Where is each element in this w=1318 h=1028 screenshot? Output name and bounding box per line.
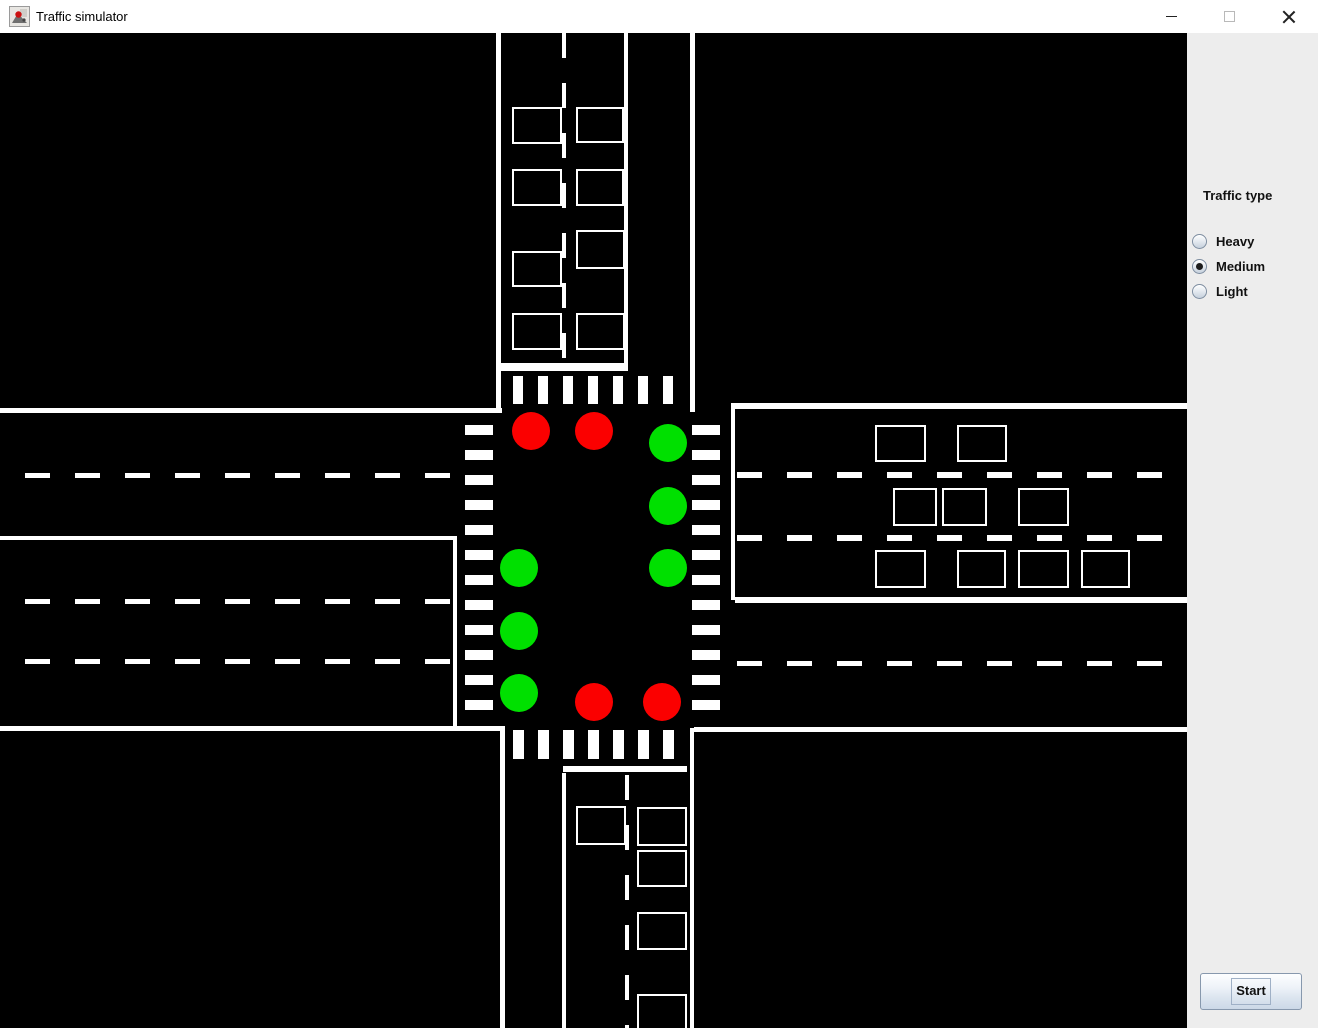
crosswalk-left-stripe xyxy=(465,550,493,560)
right-road-bottom-edge xyxy=(694,727,1187,732)
start-button-label: Start xyxy=(1231,978,1271,1004)
traffic-light-green xyxy=(649,487,687,525)
bottom-road-right-edge xyxy=(690,728,694,1028)
traffic-light-green xyxy=(500,549,538,587)
car xyxy=(576,806,626,845)
crosswalk-bottom-stripe xyxy=(538,730,549,759)
bottom-road-left-edge xyxy=(500,726,505,1028)
crosswalk-bottom-stripe xyxy=(663,730,674,759)
crosswalk-top-stripe xyxy=(513,376,523,404)
minimize-icon xyxy=(1166,16,1177,17)
crosswalk-left-stripe xyxy=(465,600,493,610)
crosswalk-right-stripe xyxy=(692,425,720,435)
crosswalk-top-stripe xyxy=(563,376,573,404)
radio-option-heavy[interactable]: Heavy xyxy=(1190,229,1315,254)
minimize-button[interactable] xyxy=(1142,0,1200,33)
close-icon xyxy=(1282,10,1296,24)
crosswalk-right-stripe xyxy=(692,700,720,710)
crosswalk-top-stripe xyxy=(638,376,648,404)
crosswalk-bottom-stripe xyxy=(563,730,574,759)
simulation-canvas xyxy=(0,33,1187,1028)
car xyxy=(576,169,624,206)
crosswalk-left-stripe xyxy=(465,625,493,635)
maximize-button[interactable] xyxy=(1200,0,1259,33)
radio-label: Heavy xyxy=(1216,234,1254,249)
car xyxy=(512,169,562,206)
car xyxy=(512,251,562,287)
window-title: Traffic simulator xyxy=(36,9,128,24)
crosswalk-left-stripe xyxy=(465,425,493,435)
car xyxy=(512,313,562,350)
app-icon xyxy=(9,6,30,27)
title-bar: Traffic simulator xyxy=(0,0,1318,33)
traffic-light-green xyxy=(649,424,687,462)
car xyxy=(576,230,625,269)
car xyxy=(942,488,987,526)
car xyxy=(512,107,562,144)
right-road-lane2-dashes xyxy=(737,535,1187,541)
car xyxy=(957,425,1007,462)
maximize-icon xyxy=(1224,11,1235,22)
radio-option-medium[interactable]: Medium xyxy=(1190,254,1315,279)
traffic-light-red xyxy=(512,412,550,450)
car xyxy=(957,550,1006,588)
crosswalk-right-stripe xyxy=(692,650,720,660)
crosswalk-right-stripe xyxy=(692,525,720,535)
radio-unselected-icon[interactable] xyxy=(1192,234,1207,249)
crosswalk-right-stripe xyxy=(692,550,720,560)
bottom-stop-line xyxy=(563,766,687,772)
left-road-median-line xyxy=(0,536,457,540)
crosswalk-left-stripe xyxy=(465,500,493,510)
crosswalk-left-stripe xyxy=(465,675,493,685)
top-road-left-edge xyxy=(496,33,501,413)
car xyxy=(1018,550,1069,588)
start-button[interactable]: Start xyxy=(1200,973,1302,1010)
car xyxy=(1018,488,1069,526)
crosswalk-bottom-stripe xyxy=(613,730,624,759)
traffic-light-green xyxy=(500,674,538,712)
crosswalk-right-stripe xyxy=(692,450,720,460)
car xyxy=(875,550,926,588)
car xyxy=(1081,550,1130,588)
right-road-lower-lane-dashes xyxy=(737,661,1163,666)
crosswalk-bottom-stripe xyxy=(588,730,599,759)
radio-unselected-icon[interactable] xyxy=(1192,284,1207,299)
crosswalk-left-stripe xyxy=(465,475,493,485)
bottom-road-median-line xyxy=(562,773,566,1028)
crosswalk-left-stripe xyxy=(465,650,493,660)
crosswalk-top-stripe xyxy=(588,376,598,404)
radio-label: Medium xyxy=(1216,259,1265,274)
crosswalk-left-stripe xyxy=(465,450,493,460)
crosswalk-right-stripe xyxy=(692,625,720,635)
crosswalk-top-stripe xyxy=(538,376,548,404)
car xyxy=(576,313,625,350)
car xyxy=(893,488,937,526)
crosswalk-right-stripe xyxy=(692,500,720,510)
crosswalk-left-stripe xyxy=(465,575,493,585)
left-road-mid-lane-dashes xyxy=(25,599,452,604)
crosswalk-right-stripe xyxy=(692,675,720,685)
traffic-light-green xyxy=(649,549,687,587)
right-road-top-edge xyxy=(731,403,1187,409)
traffic-light-green xyxy=(500,612,538,650)
radio-selected-icon[interactable] xyxy=(1192,259,1207,274)
left-road-right-edge xyxy=(453,536,457,731)
crosswalk-left-stripe xyxy=(465,700,493,710)
left-road-bottom-edge xyxy=(0,726,502,731)
crosswalk-top-stripe xyxy=(663,376,673,404)
car xyxy=(637,850,687,887)
traffic-type-label: Traffic type xyxy=(1203,188,1272,203)
car xyxy=(875,425,926,462)
crosswalk-right-stripe xyxy=(692,600,720,610)
right-road-left-edge xyxy=(731,403,735,600)
car xyxy=(576,107,624,143)
car xyxy=(637,807,687,846)
radio-option-light[interactable]: Light xyxy=(1190,279,1315,304)
traffic-type-options: HeavyMediumLight xyxy=(1190,229,1315,304)
crosswalk-bottom-stripe xyxy=(513,730,524,759)
crosswalk-right-stripe xyxy=(692,475,720,485)
control-panel: Traffic type HeavyMediumLight Start xyxy=(1187,33,1318,1028)
right-road-lane1-dashes xyxy=(737,472,1187,478)
crosswalk-top-stripe xyxy=(613,376,623,404)
crosswalk-right-stripe xyxy=(692,575,720,585)
crosswalk-bottom-stripe xyxy=(638,730,649,759)
car xyxy=(637,994,687,1028)
traffic-light-red xyxy=(575,683,613,721)
top-road-lane-dashes xyxy=(562,33,566,364)
crosswalk-left-stripe xyxy=(465,525,493,535)
traffic-light-red xyxy=(575,412,613,450)
left-road-top-edge xyxy=(0,408,502,413)
left-road-upper-lane-dashes xyxy=(25,473,451,478)
right-road-median-line xyxy=(735,597,1187,603)
traffic-light-red xyxy=(643,683,681,721)
car xyxy=(637,912,687,950)
close-button[interactable] xyxy=(1259,0,1318,33)
radio-label: Light xyxy=(1216,284,1248,299)
top-stop-line xyxy=(500,363,628,371)
top-road-right-edge xyxy=(690,33,695,412)
left-road-lower-lane-dashes xyxy=(25,659,452,664)
